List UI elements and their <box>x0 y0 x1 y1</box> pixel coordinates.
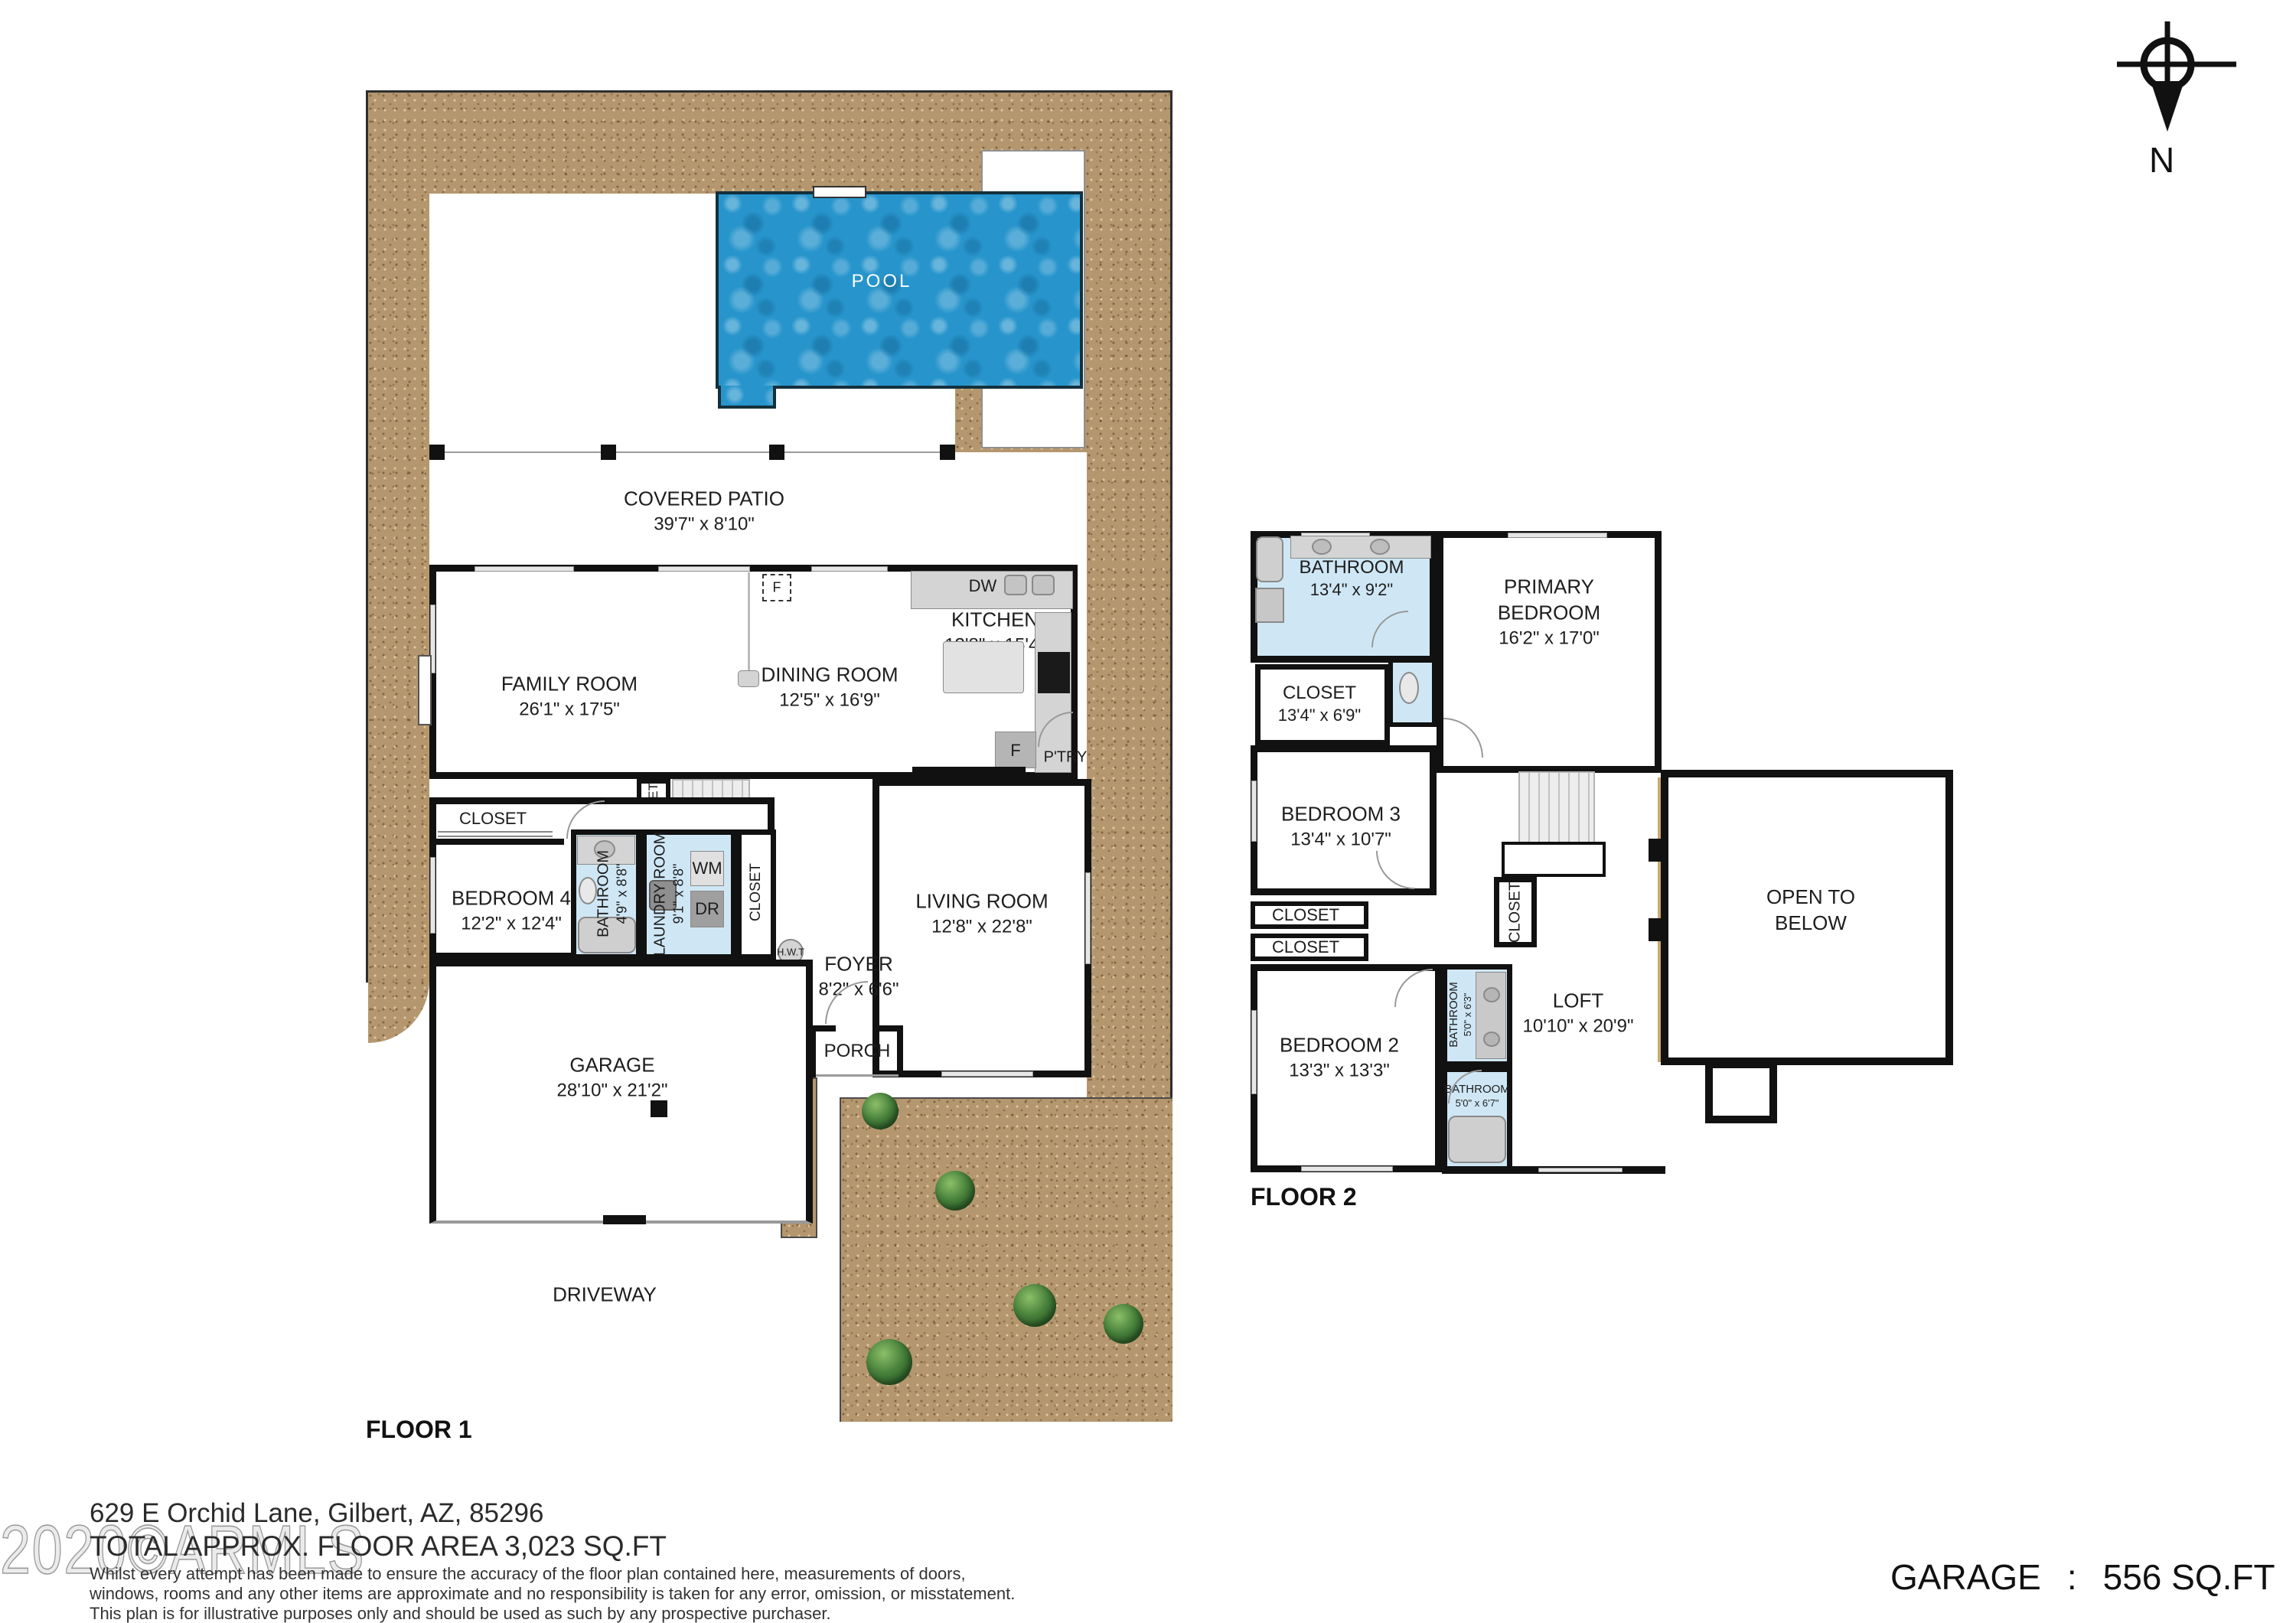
desert-landscape-right <box>1087 452 1170 1099</box>
window <box>811 566 888 572</box>
closet-shelf <box>438 831 553 837</box>
open-to-below-extension <box>1705 1061 1777 1123</box>
dishwasher-label: DW <box>969 576 997 596</box>
patio-pillar <box>429 445 445 460</box>
pool-ladder <box>813 186 866 198</box>
floor-plan-page: POOL COVERED PATIO 39'7" x 8'10" FAMILY … <box>0 0 2296 1623</box>
bathroom-hall-label: BATHROOM 5'0" x 6'3" <box>1446 982 1474 1048</box>
shrub <box>935 1171 975 1211</box>
window <box>941 1071 1033 1077</box>
bedroom4-label: BEDROOM 4 12'2" x 12'4" <box>452 886 571 936</box>
shrub <box>862 1093 899 1129</box>
stairs-landing <box>1502 842 1606 877</box>
porch-wall-right <box>897 1025 903 1077</box>
window <box>658 566 750 572</box>
bathroom-primary-label: BATHROOM 13'4" x 9'2" <box>1300 556 1404 601</box>
bed4-closet-label: CLOSET <box>748 863 765 921</box>
garage-label: GARAGE 28'10" x 21'2" <box>557 1053 668 1103</box>
lot-boundary-right <box>1170 90 1172 1100</box>
compass-north-label: N <box>2149 139 2174 181</box>
compass-icon <box>2114 15 2252 138</box>
address: 629 E Orchid Lane, Gilbert, AZ, 85296 <box>90 1498 543 1529</box>
bedroom2-label: BEDROOM 2 13'3" x 13'3" <box>1280 1033 1399 1083</box>
living-room-label: LIVING ROOM 12'8" x 22'8" <box>915 889 1048 939</box>
water-heater-label: H.W.T <box>777 947 804 958</box>
window <box>1251 1010 1257 1094</box>
window <box>1538 1168 1623 1172</box>
bathroom1-label: BATHROOM 4'9" x 8'8" <box>593 850 631 937</box>
dining-room-label: DINING ROOM 12'5" x 16'9" <box>761 663 898 712</box>
driveway-label: DRIVEWAY <box>553 1283 657 1307</box>
dryer-label: DR <box>695 899 719 919</box>
shrub <box>1013 1284 1056 1327</box>
fridge-label: F <box>1010 741 1020 761</box>
desert-landscape-left-curve <box>368 980 429 1043</box>
shower <box>1255 588 1284 623</box>
window <box>430 857 435 934</box>
floor1-title: FLOOR 1 <box>366 1416 472 1444</box>
window <box>1508 533 1607 538</box>
primary-bedroom-label: PRIMARY BEDROOM 16'2" x 17'0" <box>1498 575 1600 650</box>
pool-step <box>718 386 776 409</box>
desert-landscape-left <box>368 93 429 980</box>
vanity-sink <box>1370 539 1390 555</box>
pantry-label: P'TRY <box>1044 749 1088 767</box>
bedroom3-label: BEDROOM 3 13'4" x 10'7" <box>1281 802 1401 852</box>
bathtub-primary <box>1256 536 1283 582</box>
porch-label: PORCH <box>824 1041 891 1062</box>
patio-pillar <box>601 445 616 460</box>
bay-nook <box>418 655 432 725</box>
total-area: TOTAL APPROX. FLOOR AREA 3,023 SQ.FT <box>90 1530 667 1563</box>
fireplace-label: F <box>773 580 781 596</box>
window <box>475 566 574 572</box>
closet-wall <box>429 839 564 845</box>
vanity-sink <box>1312 539 1332 555</box>
kitchen-sink <box>1032 575 1055 595</box>
dining-light-pole <box>748 572 750 672</box>
closet-a-label: CLOSET <box>1272 905 1339 925</box>
disclaimer: Whilst every attempt has been made to en… <box>90 1564 1015 1623</box>
bathroom-hall-sink <box>1483 1031 1500 1047</box>
kitchen-island <box>943 641 1024 693</box>
closet-primary-label: CLOSET 13'4" x 6'9" <box>1278 681 1361 727</box>
laundry-label: LAUNDRY ROOM 9'1" x 8'8" <box>650 832 687 957</box>
covered-patio-label: COVERED PATIO 39'7" x 8'10" <box>624 487 784 536</box>
dining-light <box>738 670 759 687</box>
patio-pillar <box>769 445 784 460</box>
garage-door-center <box>603 1215 646 1224</box>
stairs-floor2 <box>1518 771 1595 845</box>
porch-edge <box>816 1074 899 1077</box>
stair-closet-label: CLOSET <box>1507 882 1525 943</box>
window <box>1301 1166 1393 1172</box>
pool-label: POOL <box>852 271 912 292</box>
stove <box>1038 652 1070 693</box>
family-room-label: FAMILY ROOM 26'1" x 17'5" <box>501 672 638 722</box>
window <box>1085 872 1091 964</box>
patio-pillar <box>940 445 955 460</box>
patio-edge-line <box>429 451 955 453</box>
shrub <box>866 1339 912 1385</box>
kitchen-sink <box>1004 575 1027 595</box>
toilet <box>1399 672 1419 704</box>
closet-b-label: CLOSET <box>1272 937 1339 957</box>
shrub <box>1104 1304 1143 1344</box>
washer-label: WM <box>692 859 722 878</box>
garage-post <box>651 1100 667 1117</box>
open-to-below-label: OPEN TO BELOW <box>1766 885 1855 937</box>
bathroom-hall-sink <box>1483 987 1500 1002</box>
bathtub-hall <box>1448 1116 1506 1163</box>
family-closet-label: CLOSET <box>459 809 527 829</box>
garage-area: GARAGE : 556 SQ.FT <box>1890 1556 2275 1598</box>
pantry-wall <box>912 767 1026 774</box>
window <box>1251 781 1257 842</box>
loft-label: LOFT 10'10" x 20'9" <box>1523 989 1634 1038</box>
floor2-title: FLOOR 2 <box>1251 1183 1357 1211</box>
